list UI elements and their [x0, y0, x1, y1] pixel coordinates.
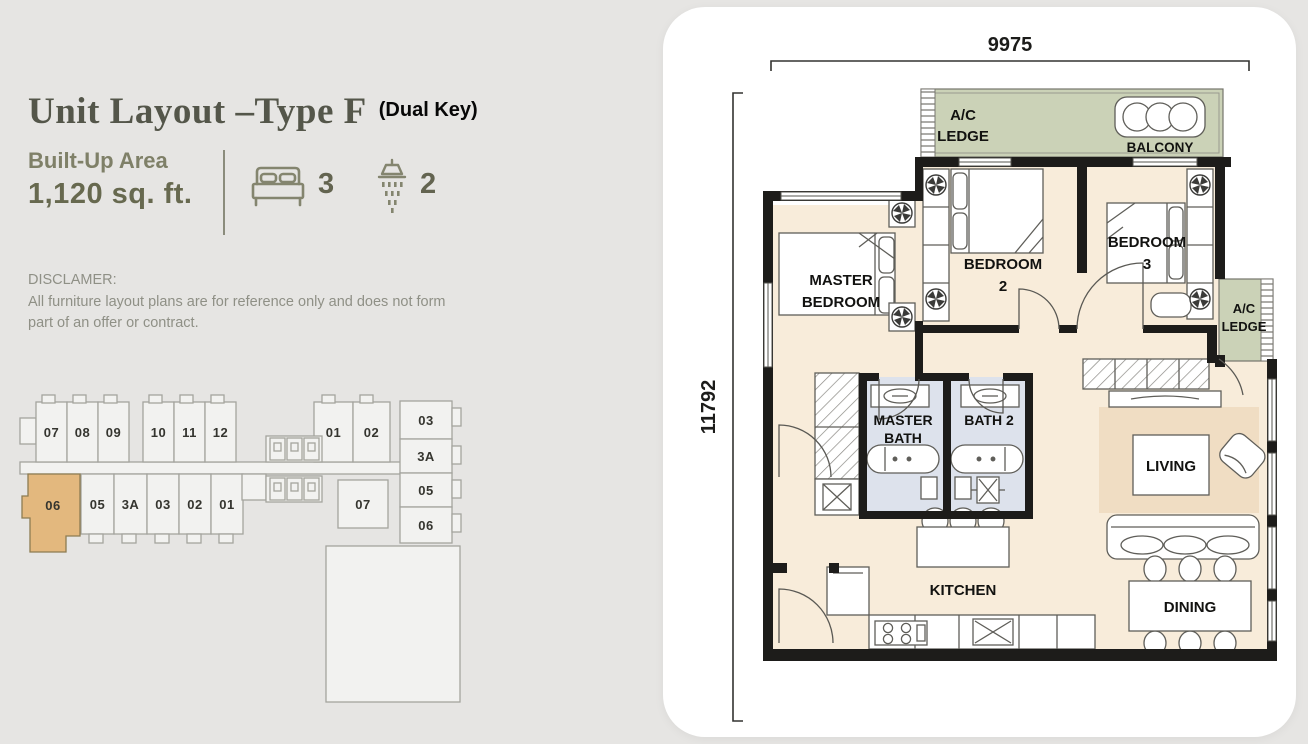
room-label-bath2: BATH 2: [964, 412, 1014, 428]
key-plan-highlighted-unit: [22, 474, 80, 552]
room-label-master-bedroom: MASTER: [809, 272, 873, 289]
room-label-bedroom2: BEDROOM: [964, 256, 1042, 273]
floor-plan: A/C LEDGE BALCONY MASTER BEDROOM BEDROOM…: [663, 7, 1296, 737]
dimension-width: 9975: [988, 34, 1033, 56]
key-plan-unit: 08: [75, 425, 90, 440]
key-plan-unit: 11: [182, 425, 197, 440]
key-plan-unit: 02: [187, 497, 202, 512]
fridge: [827, 567, 869, 615]
bathroom-count: 2: [420, 168, 436, 201]
key-plan-unit: 09: [106, 425, 121, 440]
master-wardrobe: [815, 373, 859, 479]
dimension-height: 11792: [698, 380, 720, 435]
key-plan-unit: 12: [213, 425, 228, 440]
disclaimer: DISCLAMER: All furniture layout plans ar…: [28, 270, 498, 333]
key-plan-unit: 07: [355, 497, 370, 512]
room-label-ac-ledge2: A/C: [1233, 301, 1256, 316]
toilet: [921, 477, 937, 499]
room-label-master-bath: MASTER: [873, 412, 932, 428]
disclaimer-line2: part of an offer or contract.: [28, 313, 498, 333]
bed-icon: [250, 164, 306, 210]
toilet: [955, 477, 971, 499]
room-label-ac-ledge2: LEDGE: [1222, 319, 1267, 334]
room-label-ac-ledge: LEDGE: [937, 128, 989, 145]
room-label-dining: DINING: [1164, 599, 1217, 616]
dual-key-tag: (Dual Key): [379, 99, 478, 121]
bedroom2-bed: [951, 169, 1043, 253]
balcony-seat: [1115, 97, 1205, 137]
tv-console: [1109, 391, 1221, 407]
floor-plan-card: A/C LEDGE BALCONY MASTER BEDROOM BEDROOM…: [663, 7, 1296, 737]
room-label-bedroom3: BEDROOM: [1108, 234, 1186, 251]
room-label-master-bath: BATH: [884, 430, 922, 446]
room-label-living: LIVING: [1146, 458, 1196, 475]
info-panel: Unit Layout –Type F(Dual Key) Built-Up A…: [0, 0, 663, 744]
built-up-area-label: Built-Up Area: [28, 148, 168, 174]
key-plan-unit: 02: [364, 425, 379, 440]
room-label-master-bedroom: BEDROOM: [802, 294, 880, 311]
key-plan-unit-highlighted: 06: [45, 498, 60, 513]
hall-wardrobe: [1083, 359, 1209, 389]
key-plan: 07 08 09 10 11 12 01 02 06 05 3A 03 02 0…: [8, 388, 468, 718]
key-plan-unit: 01: [219, 497, 234, 512]
sofa: [1107, 515, 1259, 559]
disclaimer-line1: All furniture layout plans are for refer…: [28, 292, 498, 312]
utility-sink: [815, 479, 859, 515]
key-plan-unit: 3A: [122, 497, 140, 512]
key-plan-unit: 03: [418, 413, 433, 428]
master-bath-vanity: [871, 385, 929, 407]
unit-layout-title: Unit Layout –Type F: [28, 91, 367, 132]
bath2-shower: [951, 445, 1023, 473]
room-label-kitchen: KITCHEN: [930, 582, 997, 599]
page-title: Unit Layout –Type F(Dual Key): [28, 90, 478, 133]
key-plan-unit: 05: [418, 483, 433, 498]
room-label-bedroom2: 2: [999, 278, 1007, 295]
bedroom-count: 3: [318, 168, 334, 201]
key-plan-unit: 03: [155, 497, 170, 512]
bedroom3-desk: [1151, 293, 1191, 317]
kitchen-sink: [973, 619, 1013, 645]
room-label-ac-ledge: A/C: [950, 107, 976, 124]
key-plan-unit: 05: [90, 497, 105, 512]
key-plan-unit: 10: [151, 425, 166, 440]
built-up-area-value: 1,120 sq. ft.: [28, 178, 192, 211]
key-plan-unit: 3A: [417, 449, 435, 464]
shower-icon: [372, 158, 412, 214]
room-label-balcony: BALCONY: [1127, 140, 1194, 155]
disclaimer-heading: DISCLAMER:: [28, 270, 498, 290]
vertical-divider: [223, 150, 225, 235]
room-label-bedroom3: 3: [1143, 256, 1151, 273]
key-plan-unit: 07: [44, 425, 59, 440]
key-plan-unit: 06: [418, 518, 433, 533]
key-plan-unit: 01: [326, 425, 341, 440]
stove: [875, 621, 927, 645]
master-bath-shower: [867, 445, 939, 473]
